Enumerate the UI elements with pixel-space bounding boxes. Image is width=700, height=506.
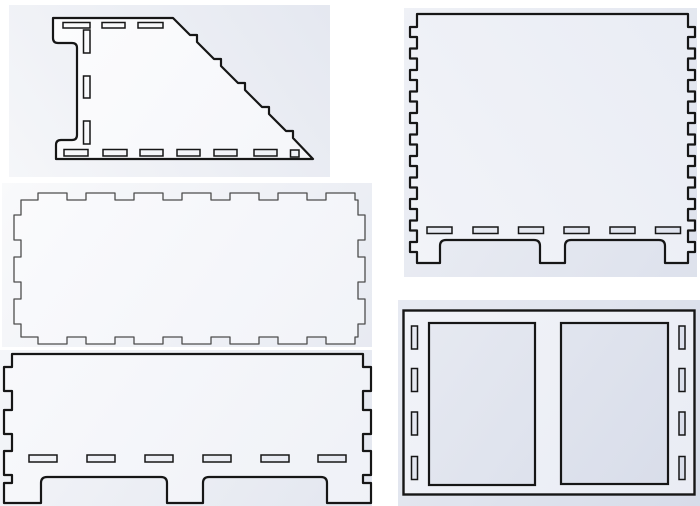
slot-cutout xyxy=(63,23,90,29)
template-sheet xyxy=(0,0,700,506)
slot-cutout xyxy=(564,227,589,234)
piece-outline xyxy=(14,193,365,344)
piece-wide-footed-panel xyxy=(0,350,372,506)
slot-cutout xyxy=(84,30,91,53)
slot-cutout xyxy=(679,457,685,480)
slot-cutout xyxy=(214,150,237,157)
slot-cutout xyxy=(412,412,418,435)
slot-cutout xyxy=(610,227,635,234)
slot-cutout xyxy=(318,455,346,462)
slot-cutout xyxy=(203,455,231,462)
slot-cutout xyxy=(254,150,277,157)
slot-cutout xyxy=(656,227,681,234)
slot-cutout xyxy=(84,76,91,98)
slot-cutout xyxy=(412,457,418,480)
slot-cutout xyxy=(427,227,452,234)
piece-double-window-divider xyxy=(398,300,700,506)
slot-cutout xyxy=(261,455,289,462)
slot-cutout xyxy=(145,455,173,462)
slot-cutout xyxy=(84,121,91,144)
piece-outline xyxy=(410,14,695,263)
slot-cutout xyxy=(679,326,685,349)
slot-cutout xyxy=(177,150,200,157)
window-cutout xyxy=(429,323,535,485)
slot-cutout xyxy=(102,23,125,29)
slot-cutout xyxy=(87,455,115,462)
slot-cutout xyxy=(291,150,300,157)
slot-cutout xyxy=(679,412,685,435)
window-cutout xyxy=(561,323,668,484)
slot-cutout xyxy=(138,23,163,29)
slot-cutout xyxy=(679,369,685,392)
slot-cutout xyxy=(29,455,57,462)
slot-cutout xyxy=(412,369,418,392)
piece-tall-footed-panel xyxy=(404,8,697,277)
slot-cutout xyxy=(140,150,163,157)
slot-cutout xyxy=(473,227,498,234)
slot-cutout xyxy=(519,227,544,234)
slot-cutout xyxy=(412,326,418,349)
drawing-canvas xyxy=(0,0,700,506)
slot-cutout xyxy=(64,150,88,157)
slot-cutout xyxy=(103,150,127,157)
piece-sloped-side-panel xyxy=(9,5,330,177)
piece-tabbed-base-plate xyxy=(2,183,372,347)
